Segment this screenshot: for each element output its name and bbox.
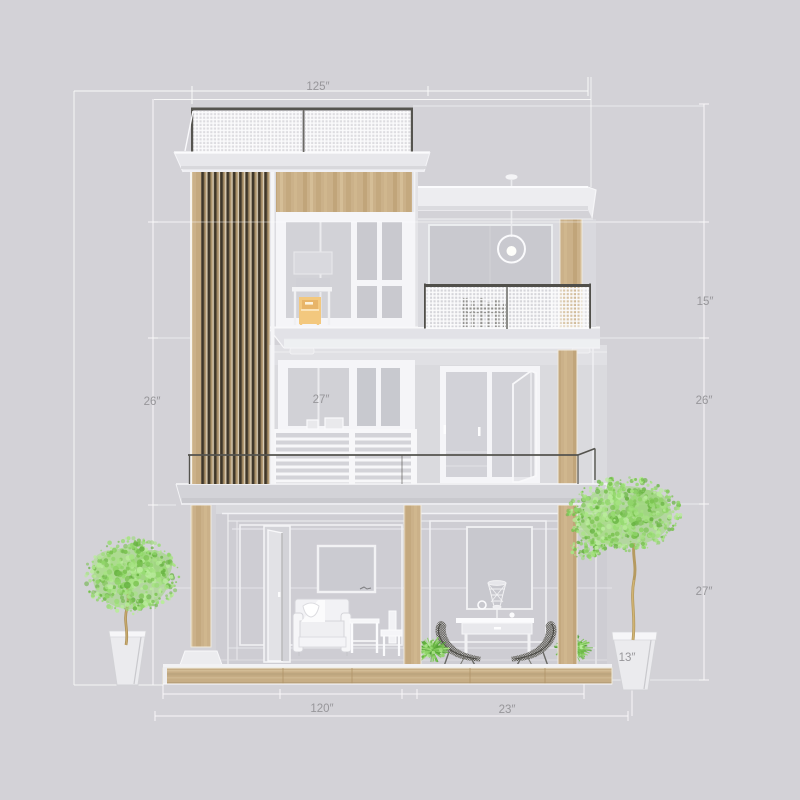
svg-text:26″: 26″ (144, 396, 161, 408)
svg-text:125″: 125″ (306, 81, 329, 93)
svg-text:23″: 23″ (499, 704, 516, 716)
svg-text:13″: 13″ (619, 652, 636, 664)
svg-text:15″: 15″ (697, 296, 714, 308)
svg-text:27″: 27″ (696, 586, 713, 598)
svg-text:120″: 120″ (310, 703, 333, 715)
svg-text:26″: 26″ (696, 395, 713, 407)
svg-text:27″: 27″ (313, 394, 330, 406)
